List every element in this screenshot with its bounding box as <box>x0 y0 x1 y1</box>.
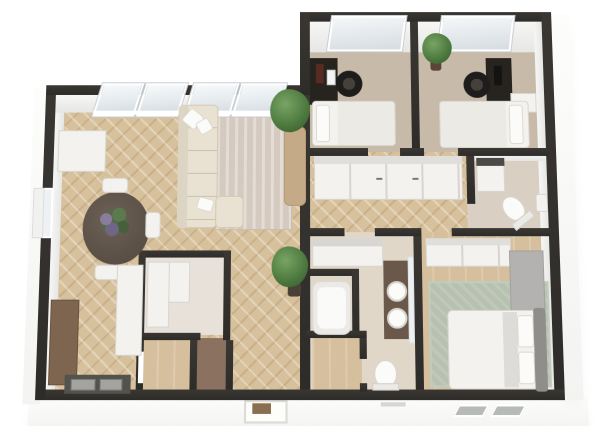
sofa-chaise <box>215 196 244 228</box>
bath-cabinet-top <box>312 238 383 246</box>
bed-1-pillow <box>316 105 330 142</box>
wall-bedroom2-south <box>458 148 548 156</box>
wall-bedroom1-south-b <box>400 148 424 156</box>
master-pillow-2 <box>518 352 535 385</box>
dining-chair-top <box>102 178 129 193</box>
washing-machine-panel <box>476 158 504 166</box>
wall-bedroom1-south-a <box>310 148 368 156</box>
wall-closet-c-right-b <box>360 383 367 391</box>
skirt-sill <box>381 402 406 406</box>
kitchen-sink-basin-1 <box>70 379 95 391</box>
storage-cabinet-vertical <box>146 262 170 328</box>
monitor-1 <box>316 64 324 83</box>
wall-hall-south-c <box>452 228 551 236</box>
closet-b-floor <box>195 338 229 394</box>
bedroom-1-window <box>327 16 407 51</box>
wardrobe-handle-1 <box>376 178 382 180</box>
wall-storage-top <box>139 250 231 257</box>
kitchen-counter <box>48 300 80 386</box>
wc-sink <box>535 194 548 212</box>
floor-plan-stage <box>0 0 600 426</box>
wall-closet-b-right <box>226 340 234 389</box>
vanity-sink-2 <box>387 308 408 329</box>
wall-wing-connector <box>300 12 310 95</box>
master-wardrobe-top <box>426 238 511 245</box>
office-chair-2 <box>463 72 490 98</box>
wall-storage-bottom <box>137 333 201 340</box>
front-door-mat <box>252 403 271 414</box>
kitchen-island <box>115 265 144 356</box>
bath-toilet-tank <box>372 383 399 390</box>
bed-2-duvet <box>440 102 507 147</box>
bed-2-pillow <box>509 105 524 144</box>
apartment-3d-floor-plan <box>0 4 600 426</box>
closet-a-door <box>138 352 144 384</box>
wall-closet-ab-divider <box>189 340 197 389</box>
wall-storage-right <box>223 250 231 340</box>
master-pillow-1 <box>517 315 534 347</box>
closet-c-floor <box>312 338 362 394</box>
wall-hall-south-a <box>310 228 344 236</box>
wall-hall-south-b <box>375 228 422 236</box>
wall-tub-niche-right <box>352 269 360 338</box>
kitchen-sink-basin-2 <box>99 379 122 391</box>
tall-planter <box>284 126 306 206</box>
bed-1-duvet <box>338 102 395 145</box>
bathtub-basin <box>317 287 346 328</box>
monitor-2 <box>494 66 502 85</box>
left-skirt-window-frame <box>32 188 45 238</box>
vanity-sink-1 <box>387 281 408 302</box>
office-chair-1 <box>336 71 363 97</box>
wardrobe-handle-2 <box>412 178 418 180</box>
hall-wardrobe-top <box>314 156 462 164</box>
white-cabinet <box>57 130 106 172</box>
dining-chair-right <box>145 212 161 238</box>
wall-wc-west <box>466 156 475 204</box>
wall-closet-c-right-a <box>360 338 367 359</box>
closet-a-floor <box>140 338 193 394</box>
pc-tower-1 <box>327 70 336 86</box>
